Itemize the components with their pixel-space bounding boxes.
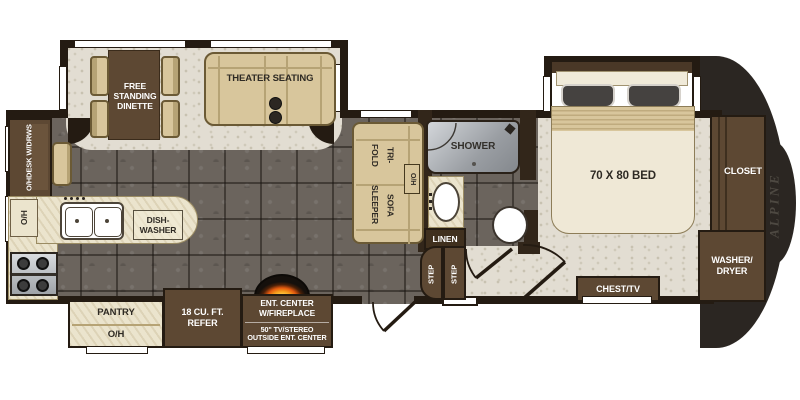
rv-floorplan: ALPINE 70 X 80 BED CLOSET WASHER/ DRY (0, 0, 800, 400)
shower-door-arc (428, 123, 456, 150)
bathroom-door-arc (466, 249, 476, 278)
bathroom-door-leaf (476, 249, 512, 278)
door-swings (0, 0, 800, 400)
entry-door-leaf (384, 302, 415, 331)
entry-door-arc (373, 302, 384, 331)
bedroom-door-leaf (523, 262, 565, 299)
bedroom-door-arc (523, 245, 565, 262)
